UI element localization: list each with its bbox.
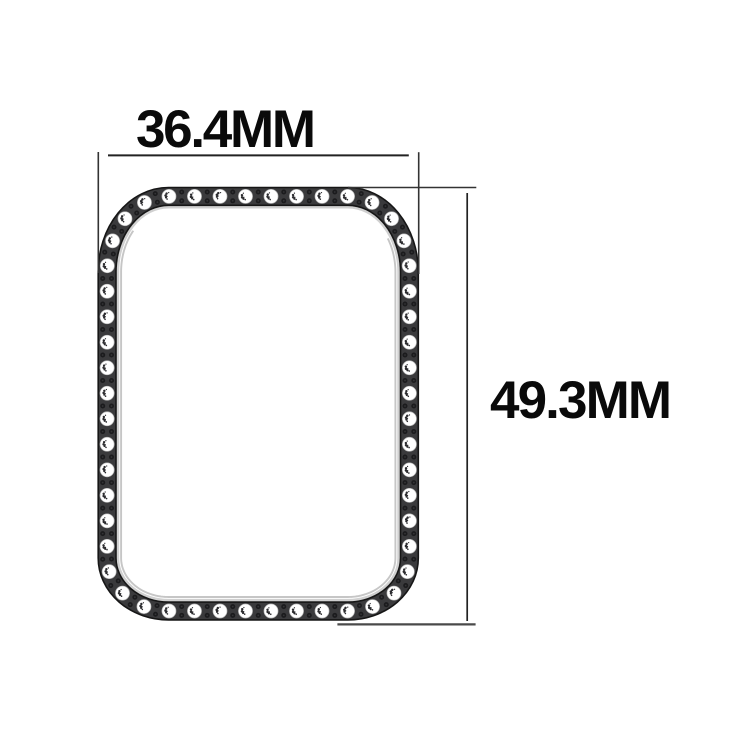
svg-text:36.4MM: 36.4MM	[136, 100, 316, 159]
svg-text:49.3MM: 49.3MM	[490, 371, 672, 430]
